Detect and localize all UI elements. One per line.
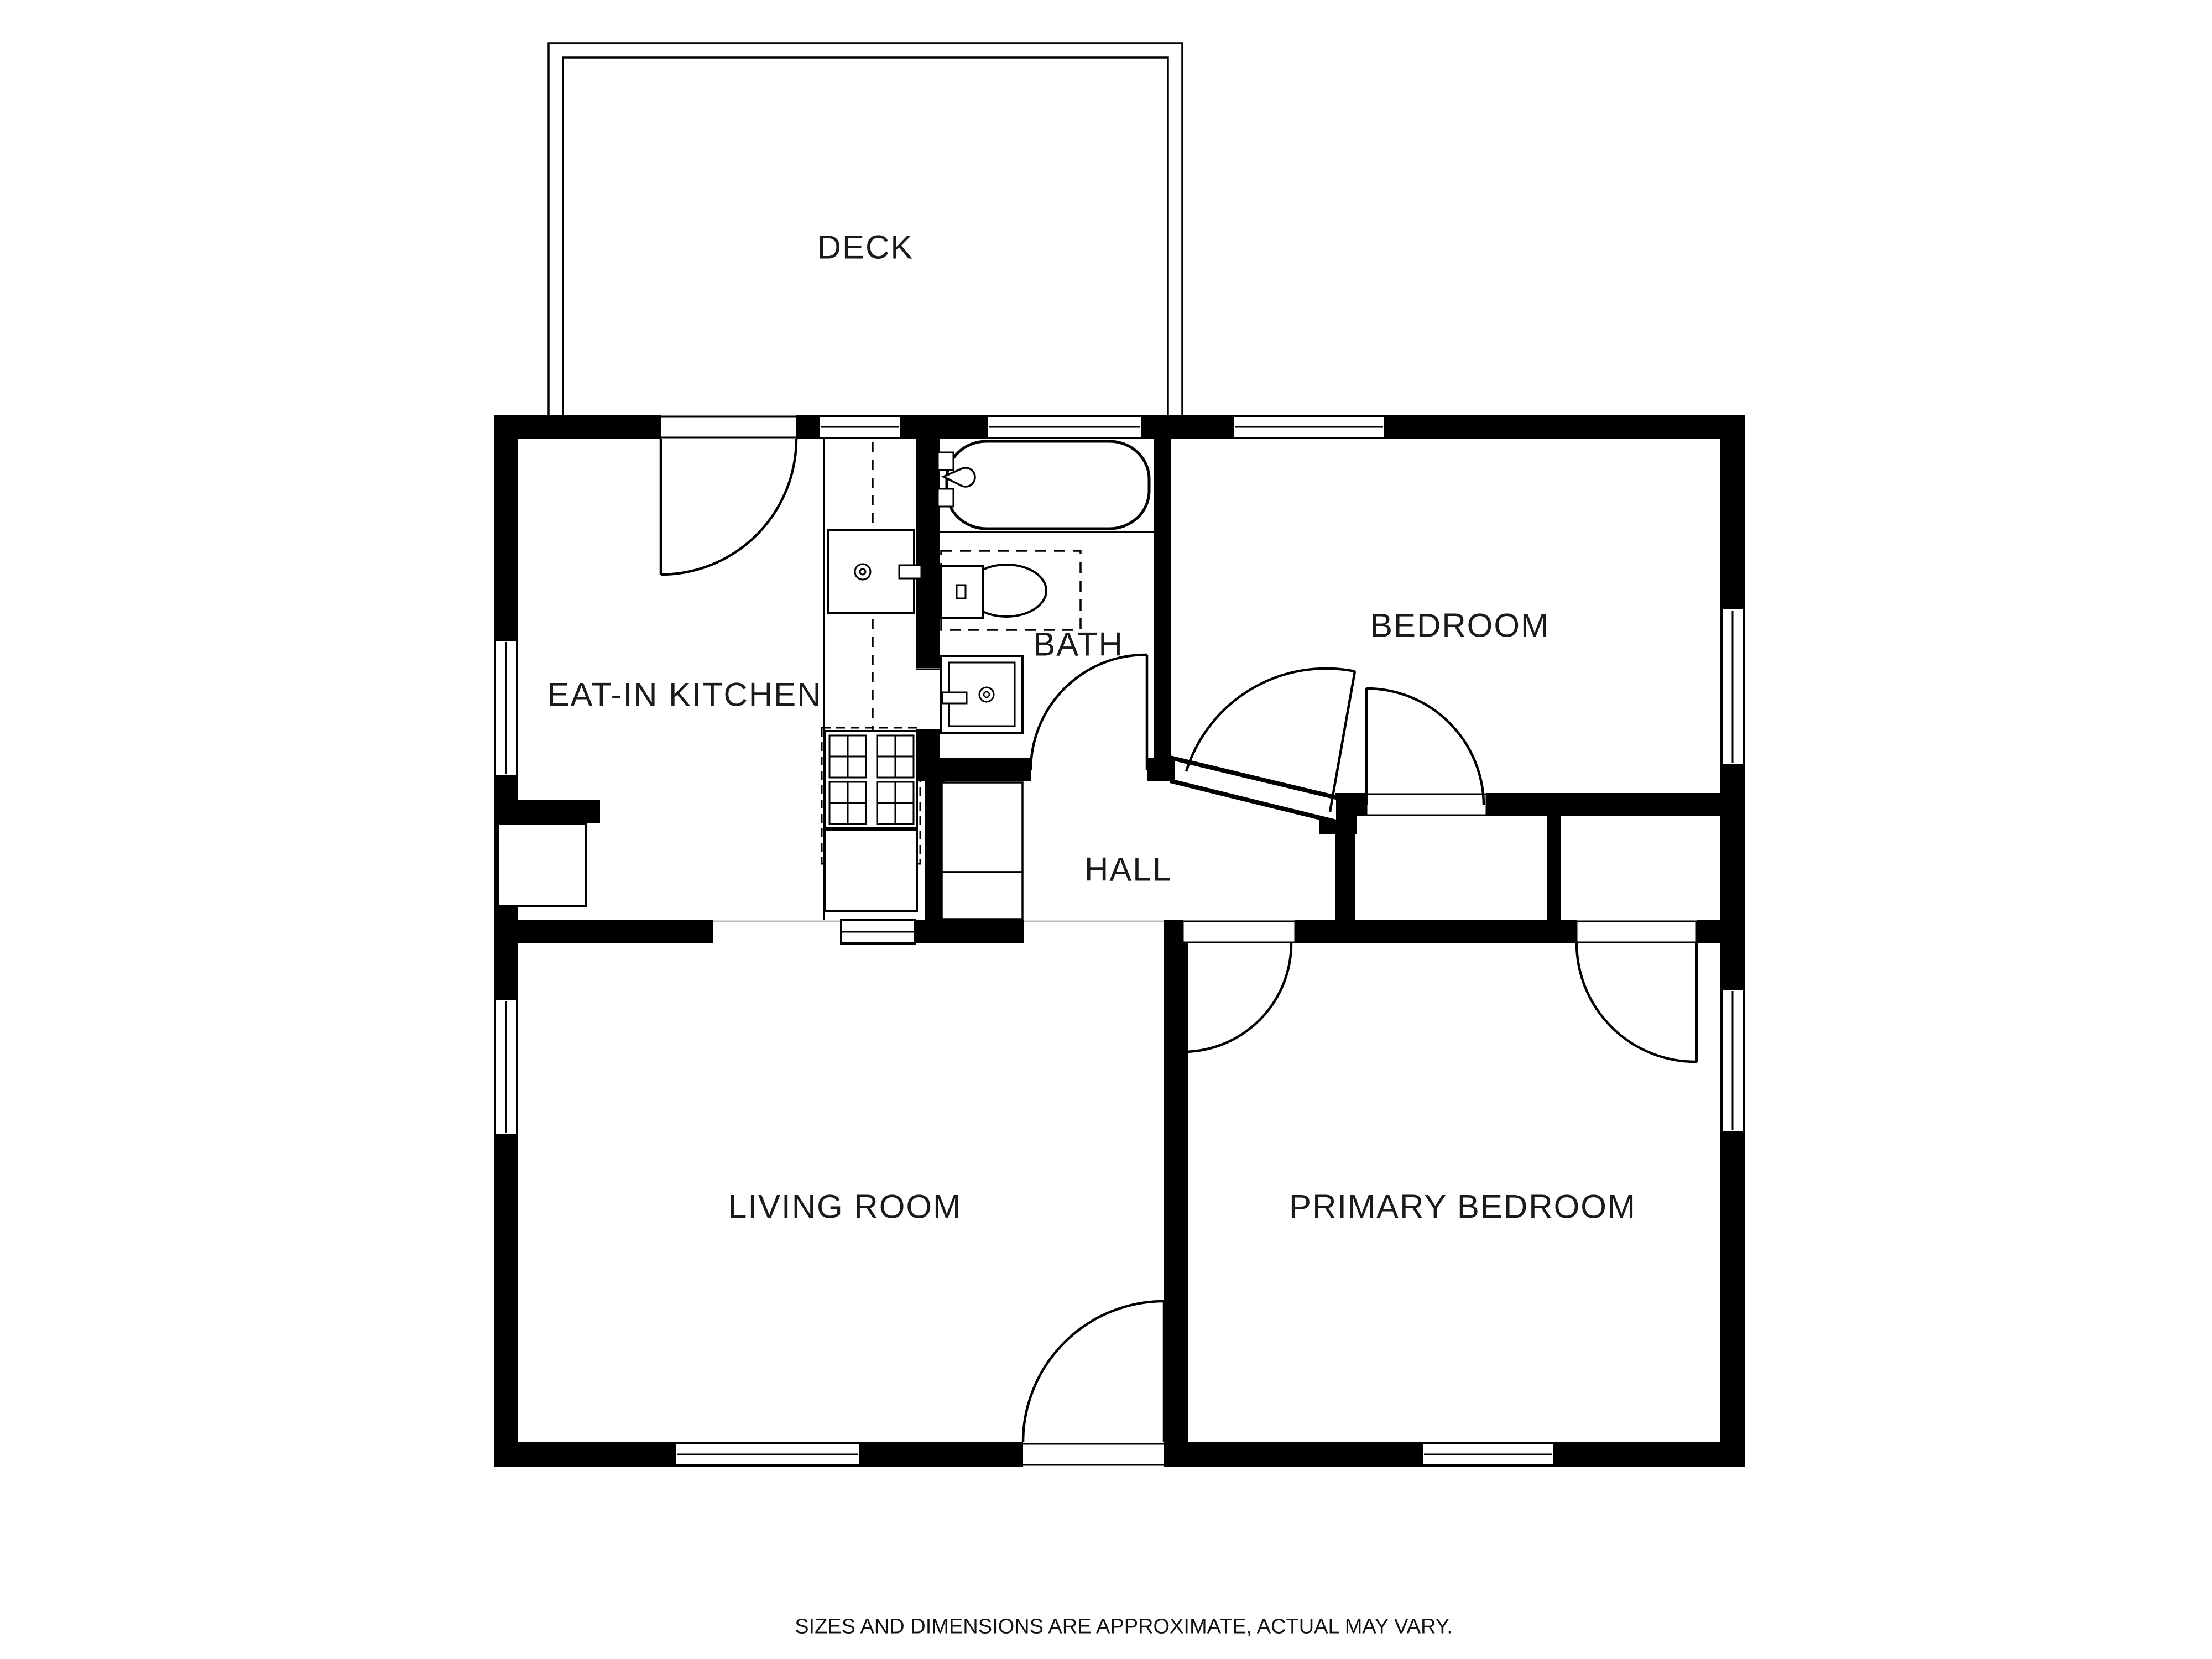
wall-right-3	[1720, 1132, 1745, 1467]
wall-bottom-1	[494, 1442, 675, 1467]
door-front-entry	[1023, 1301, 1164, 1442]
window-bath-top	[987, 416, 1142, 438]
wall-bottom-2	[860, 1442, 1023, 1467]
primary-bedroom-door-threshold	[1183, 921, 1295, 942]
wall-top-5	[1385, 415, 1745, 439]
wall-band-kitchen-living	[494, 920, 713, 943]
door-deck-to-kitchen	[661, 439, 796, 575]
stove-top	[825, 731, 917, 828]
wall-kitchen-bath-upper	[916, 439, 940, 668]
floor-plan-drawing	[0, 0, 2212, 1659]
wall-bottom-4	[1554, 1442, 1745, 1467]
window-kitchen-top	[818, 416, 901, 438]
wall-top-1	[494, 415, 661, 439]
kitchen-fixtures	[822, 439, 921, 943]
fireplace-box	[498, 823, 586, 906]
bathtub	[938, 441, 1154, 532]
window-bedroom-right	[1721, 608, 1744, 765]
window-living-bottom	[675, 1443, 860, 1465]
primary-closet-threshold	[1577, 921, 1697, 942]
wall-top-3	[901, 415, 987, 439]
kitchen-bath-passthrough	[916, 668, 940, 731]
door-bedroom-closet	[1366, 688, 1484, 805]
kitchen-sink	[828, 530, 921, 613]
door-swing-arc	[1023, 1301, 1164, 1442]
door-swing-arc	[1031, 655, 1147, 770]
bath-fixtures	[938, 441, 1154, 733]
hall-closet-lower	[942, 872, 1022, 919]
bedroom-closet-threshold	[1366, 794, 1486, 815]
window-primary-bottom	[1422, 1443, 1554, 1465]
front-door-opening	[1023, 1442, 1164, 1467]
window-living-left	[495, 999, 517, 1135]
bath-vanity	[941, 656, 1022, 733]
window-kitchen-left	[495, 640, 517, 776]
disclaimer-text: SIZES AND DIMENSIONS ARE APPROXIMATE, AC…	[795, 1615, 1453, 1639]
room-label-kitchen: EAT-IN KITCHEN	[547, 676, 822, 714]
room-label-bath: BATH	[1033, 625, 1124, 664]
deck-door-gap	[661, 415, 796, 439]
door-swing-arc	[1366, 688, 1484, 805]
appliance-front	[841, 920, 915, 943]
toilet-flush	[957, 585, 966, 598]
toilet	[941, 551, 1081, 630]
wall-living-primary	[1164, 943, 1188, 1442]
fireplace-stub-wall	[518, 800, 600, 823]
room-label-hall: HALL	[1084, 851, 1172, 889]
wall-right-2	[1720, 765, 1745, 989]
door-swing-arc	[1577, 943, 1697, 1062]
vanity-faucet	[942, 692, 967, 703]
door-swing-arc	[661, 439, 796, 575]
window-bedroom-top	[1233, 416, 1385, 438]
wall-hall-closet	[1335, 810, 1355, 943]
door-swing-arc	[1183, 943, 1291, 1052]
tub-handle	[938, 452, 953, 470]
front-door-gap	[1023, 1442, 1164, 1467]
wall-top-4	[1142, 415, 1233, 439]
wall-closet-divider	[1547, 816, 1561, 921]
wall-bath-bedroom	[1154, 439, 1171, 758]
hall-closet	[942, 782, 1022, 919]
wall-band-pb-top-3	[1697, 920, 1720, 943]
room-label-primary-bedroom: PRIMARY BEDROOM	[1289, 1188, 1636, 1226]
room-label-bedroom: BEDROOM	[1370, 607, 1550, 645]
room-label-deck: DECK	[817, 228, 914, 267]
door-primary-entry	[1183, 943, 1291, 1052]
door-swing-arc	[1186, 669, 1355, 771]
wall-bath-bottom	[916, 758, 1031, 781]
wall-bottom-3	[1164, 1442, 1422, 1467]
door-bath	[1031, 655, 1147, 770]
floor-plan: DECK EAT-IN KITCHEN BATH BEDROOM HALL LI…	[0, 0, 2212, 1659]
window-primary-right	[1721, 989, 1744, 1132]
wall-left-3	[494, 1135, 518, 1467]
interior-walls	[494, 439, 1720, 1442]
hall-closet-upper	[942, 782, 1022, 872]
wall-bath-door-stub	[1147, 758, 1172, 781]
wall-top-2	[796, 415, 818, 439]
wall-band-pb-top-2	[1355, 920, 1577, 943]
deck-door-opening	[661, 415, 796, 439]
wall-band-pb-top-1	[1295, 920, 1335, 943]
door-leaf	[1330, 671, 1355, 812]
room-label-living-room: LIVING ROOM	[728, 1188, 962, 1226]
tub-handle	[938, 489, 953, 507]
sink-faucet	[899, 565, 921, 578]
wall-angled-hall-bedroom	[1172, 758, 1338, 822]
door-primary-closet	[1577, 943, 1697, 1062]
wall-right-1	[1720, 415, 1745, 608]
wall-band-hall-left	[915, 920, 1024, 943]
refrigerator	[825, 830, 917, 911]
wall-bedroom-bottom-2	[1486, 793, 1720, 816]
wall-left-1	[494, 415, 518, 640]
wall-band-corner	[1164, 920, 1183, 943]
passthrough-gap	[916, 668, 940, 731]
